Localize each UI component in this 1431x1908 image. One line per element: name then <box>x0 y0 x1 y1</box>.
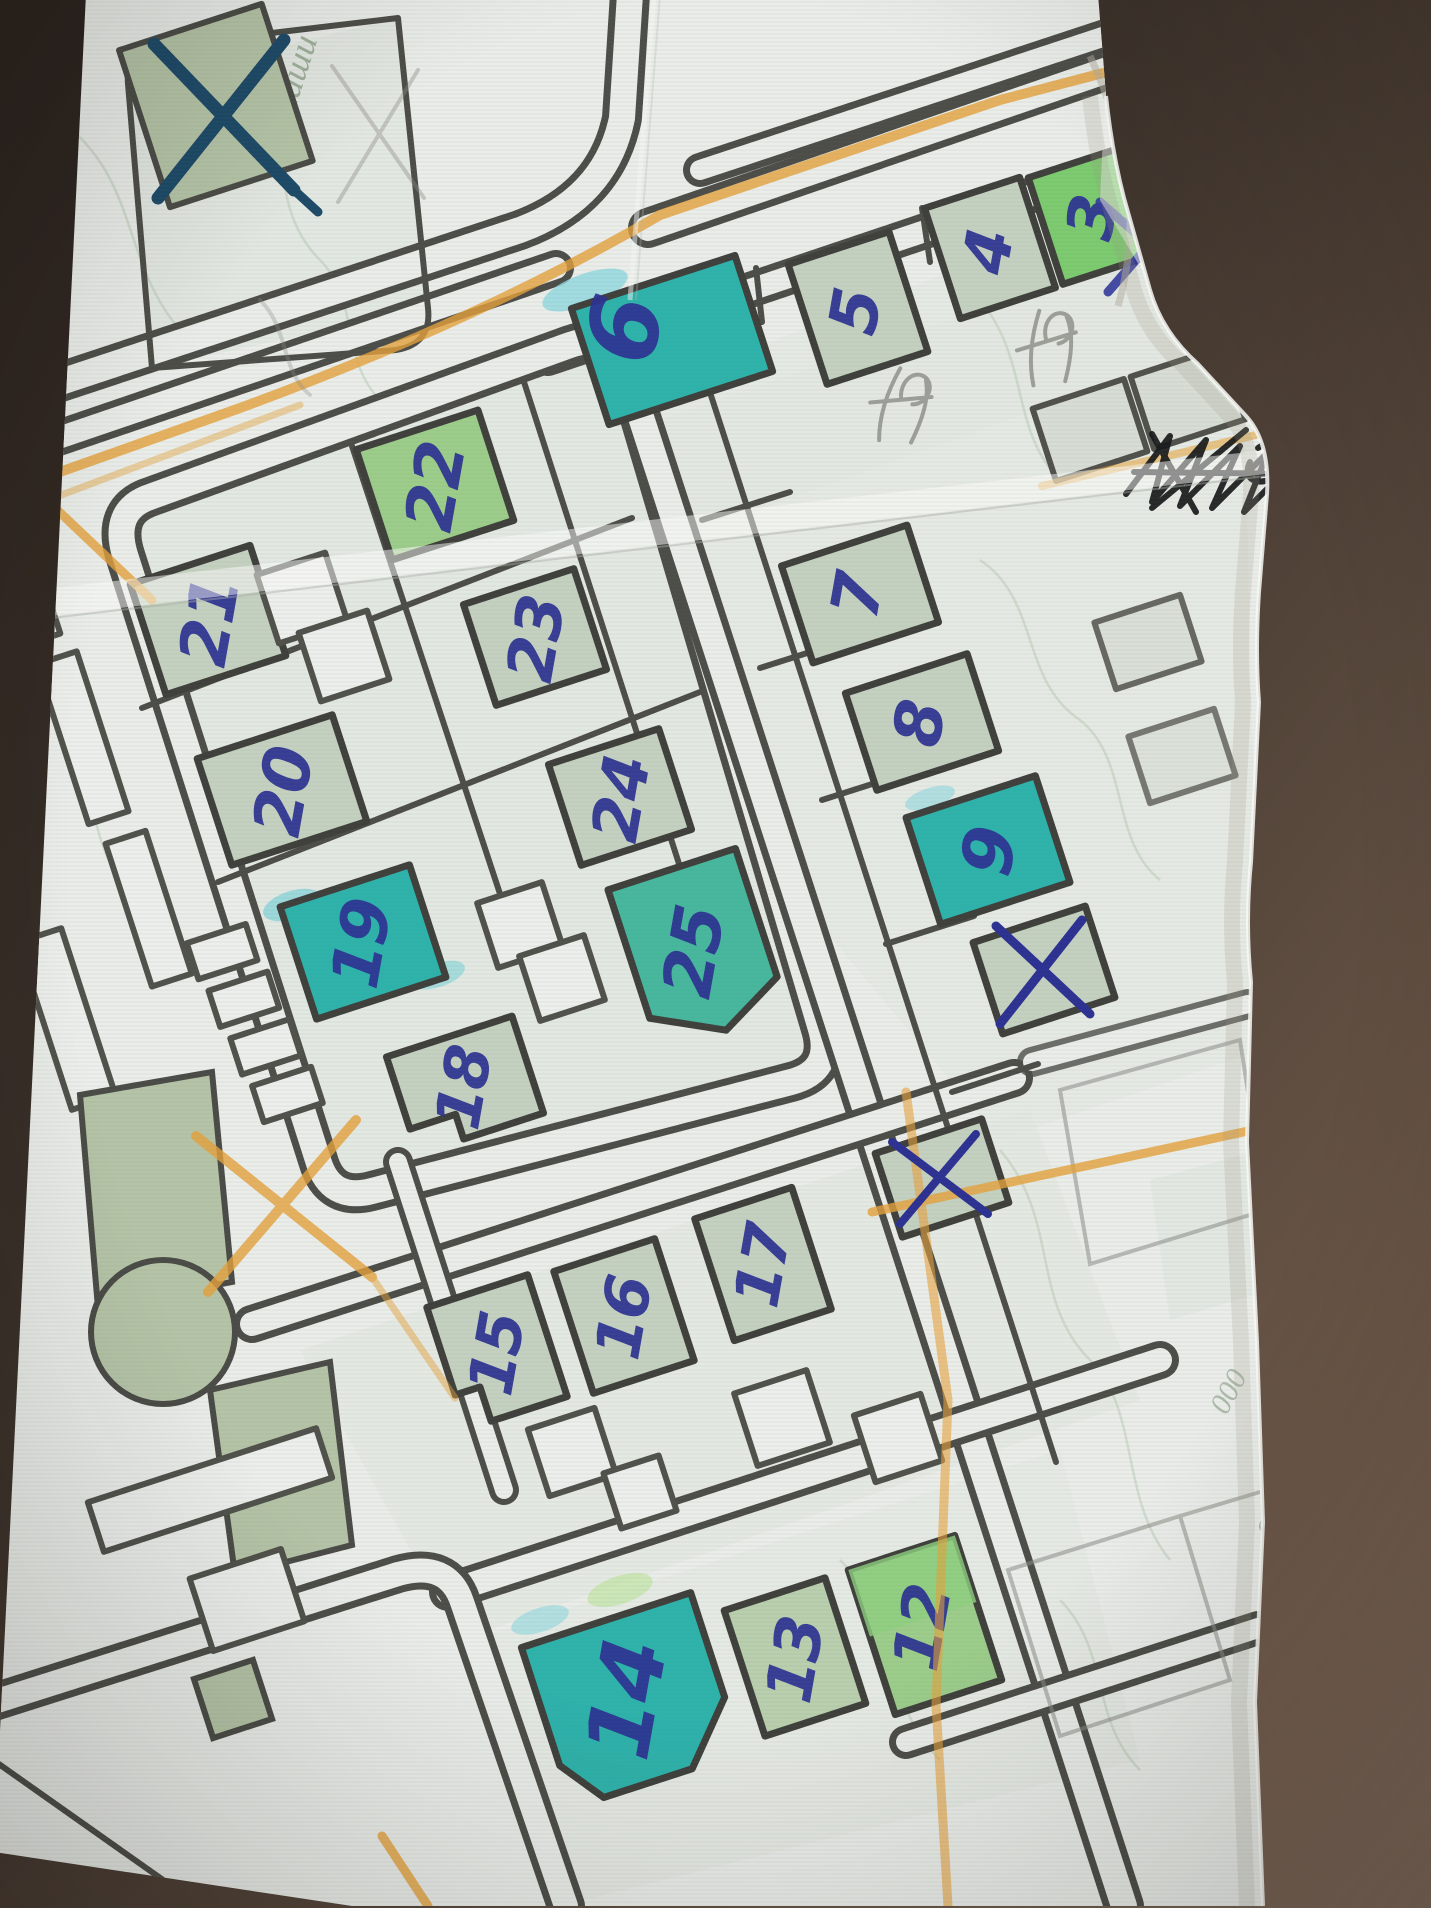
photo-of-map: Сомаши 000 900 <box>0 0 1431 1908</box>
photo-vignette <box>0 0 1431 1908</box>
map-photo-canvas: Сомаши 000 900 <box>0 0 1431 1908</box>
